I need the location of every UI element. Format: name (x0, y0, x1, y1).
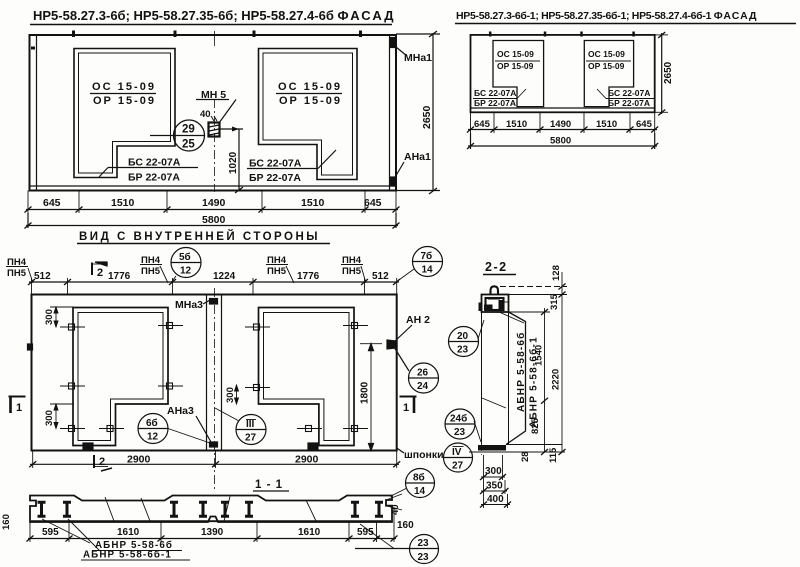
svg-text:1490: 1490 (202, 197, 226, 209)
svg-text:2: 2 (97, 267, 103, 279)
svg-text:БР 22-07А: БР 22-07А (249, 172, 301, 184)
svg-text:23: 23 (457, 345, 469, 356)
svg-text:23: 23 (418, 538, 430, 549)
svg-text:ОС 15-09: ОС 15-09 (588, 49, 625, 59)
svg-text:АН 2: АН 2 (406, 314, 430, 326)
svg-text:645: 645 (364, 197, 382, 209)
svg-text:23: 23 (454, 427, 466, 438)
svg-text:6б: 6б (146, 417, 158, 429)
svg-text:128: 128 (551, 265, 562, 281)
svg-text:25: 25 (182, 139, 195, 151)
svg-text:27: 27 (452, 461, 464, 472)
svg-text:12: 12 (180, 266, 192, 277)
svg-text:1610: 1610 (298, 527, 321, 538)
svg-text:300: 300 (485, 466, 502, 477)
svg-text:АНа3: АНа3 (167, 405, 194, 417)
svg-text:1224: 1224 (213, 271, 236, 282)
svg-text:512: 512 (372, 271, 389, 282)
svg-text:2900: 2900 (127, 454, 151, 466)
svg-text:8б: 8б (413, 472, 425, 484)
svg-text:ПН5: ПН5 (267, 266, 287, 277)
svg-text:1510: 1510 (506, 119, 527, 130)
svg-text:115: 115 (548, 447, 559, 463)
svg-text:400: 400 (487, 494, 504, 505)
svg-text:5б: 5б (179, 251, 191, 263)
svg-text:ПН5: ПН5 (141, 266, 161, 277)
svg-text:645: 645 (43, 197, 61, 209)
svg-text:МНа3: МНа3 (175, 299, 203, 311)
svg-text:300: 300 (44, 309, 55, 325)
svg-text:1540: 1540 (534, 345, 545, 366)
svg-text:645: 645 (474, 119, 491, 130)
svg-text:5800: 5800 (550, 136, 571, 147)
svg-text:шпонки: шпонки (404, 449, 444, 461)
svg-text:АНа1: АНа1 (404, 151, 431, 163)
svg-text:ВИД С ВНУТРЕННЕЙ СТОРОНЫ: ВИД С ВНУТРЕННЕЙ СТОРОНЫ (79, 230, 320, 243)
svg-text:1776: 1776 (108, 271, 131, 282)
svg-text:1: 1 (403, 402, 409, 414)
svg-text:1020: 1020 (228, 151, 239, 174)
svg-text:350: 350 (486, 481, 503, 492)
svg-text:2: 2 (99, 456, 105, 468)
svg-text:2-2: 2-2 (485, 260, 508, 274)
svg-text:МНа1: МНа1 (404, 52, 432, 64)
svg-text:26: 26 (417, 368, 429, 379)
svg-text:2220: 2220 (551, 369, 562, 390)
svg-text:5800: 5800 (202, 214, 226, 226)
svg-text:2900: 2900 (295, 454, 319, 466)
svg-text:III: III (246, 419, 255, 430)
svg-text:7б: 7б (421, 250, 433, 262)
svg-text:1610: 1610 (117, 527, 140, 538)
svg-text:НР5-58.27.3-6б; НР5-58.27.35-6: НР5-58.27.3-6б; НР5-58.27.35-6б; НР5-58.… (33, 8, 396, 23)
svg-text:1: 1 (16, 402, 22, 414)
svg-text:595: 595 (42, 527, 59, 538)
svg-text:НР5-58.27.3-6б-1; НР5-58.27.35: НР5-58.27.3-6б-1; НР5-58.27.35-6б-1; НР5… (456, 10, 758, 22)
svg-text:160: 160 (397, 520, 414, 531)
svg-text:14: 14 (422, 265, 434, 276)
svg-text:1390: 1390 (201, 527, 224, 538)
svg-text:1510: 1510 (111, 197, 135, 209)
svg-text:160: 160 (1, 514, 12, 530)
svg-text:29: 29 (182, 124, 195, 136)
svg-text:24б: 24б (450, 413, 467, 425)
svg-text:БР 22-07А: БР 22-07А (128, 172, 180, 184)
svg-text:БР 22-07А: БР 22-07А (474, 98, 516, 108)
svg-text:ПН5: ПН5 (7, 268, 27, 279)
svg-text:1490: 1490 (550, 119, 571, 130)
svg-text:28: 28 (520, 451, 531, 462)
svg-text:20: 20 (457, 331, 469, 342)
svg-text:ОС 15-09: ОС 15-09 (497, 49, 534, 59)
svg-text:БС 22-07А: БС 22-07А (128, 157, 181, 169)
svg-text:1776: 1776 (297, 271, 320, 282)
svg-text:1510: 1510 (301, 197, 325, 209)
svg-text:315: 315 (549, 293, 560, 310)
svg-text:1800: 1800 (360, 381, 371, 404)
svg-text:1510: 1510 (596, 119, 617, 130)
svg-text:2650: 2650 (663, 61, 674, 84)
svg-text:БС 22-07А: БС 22-07А (249, 158, 302, 170)
svg-text:ОР 15-09: ОР 15-09 (497, 61, 534, 71)
svg-text:ПН5: ПН5 (342, 266, 362, 277)
svg-text:ОР 15-09: ОР 15-09 (588, 61, 625, 71)
svg-text:БС 22-07А: БС 22-07А (608, 88, 650, 98)
svg-text:12: 12 (147, 432, 159, 443)
svg-text:825: 825 (530, 417, 541, 434)
svg-text:40: 40 (200, 109, 211, 120)
svg-text:300: 300 (44, 410, 55, 426)
svg-text:БР 22-07А: БР 22-07А (608, 98, 650, 108)
svg-text:1 - 1: 1 - 1 (255, 479, 283, 491)
svg-text:27: 27 (245, 433, 257, 444)
svg-text:АБНР 5-58-6б-1: АБНР 5-58-6б-1 (83, 550, 172, 561)
svg-text:АБНР 5-58-6б: АБНР 5-58-6б (515, 331, 527, 412)
svg-text:24: 24 (417, 381, 429, 392)
svg-text:512: 512 (34, 271, 51, 282)
svg-text:2650: 2650 (421, 105, 433, 129)
svg-text:300: 300 (225, 387, 236, 403)
svg-text:40: 40 (390, 504, 401, 515)
svg-text:645: 645 (636, 119, 653, 130)
svg-text:23: 23 (418, 552, 430, 563)
svg-text:БС 22-07А: БС 22-07А (474, 88, 516, 98)
svg-text:IV: IV (452, 447, 462, 458)
svg-text:14: 14 (414, 486, 426, 497)
